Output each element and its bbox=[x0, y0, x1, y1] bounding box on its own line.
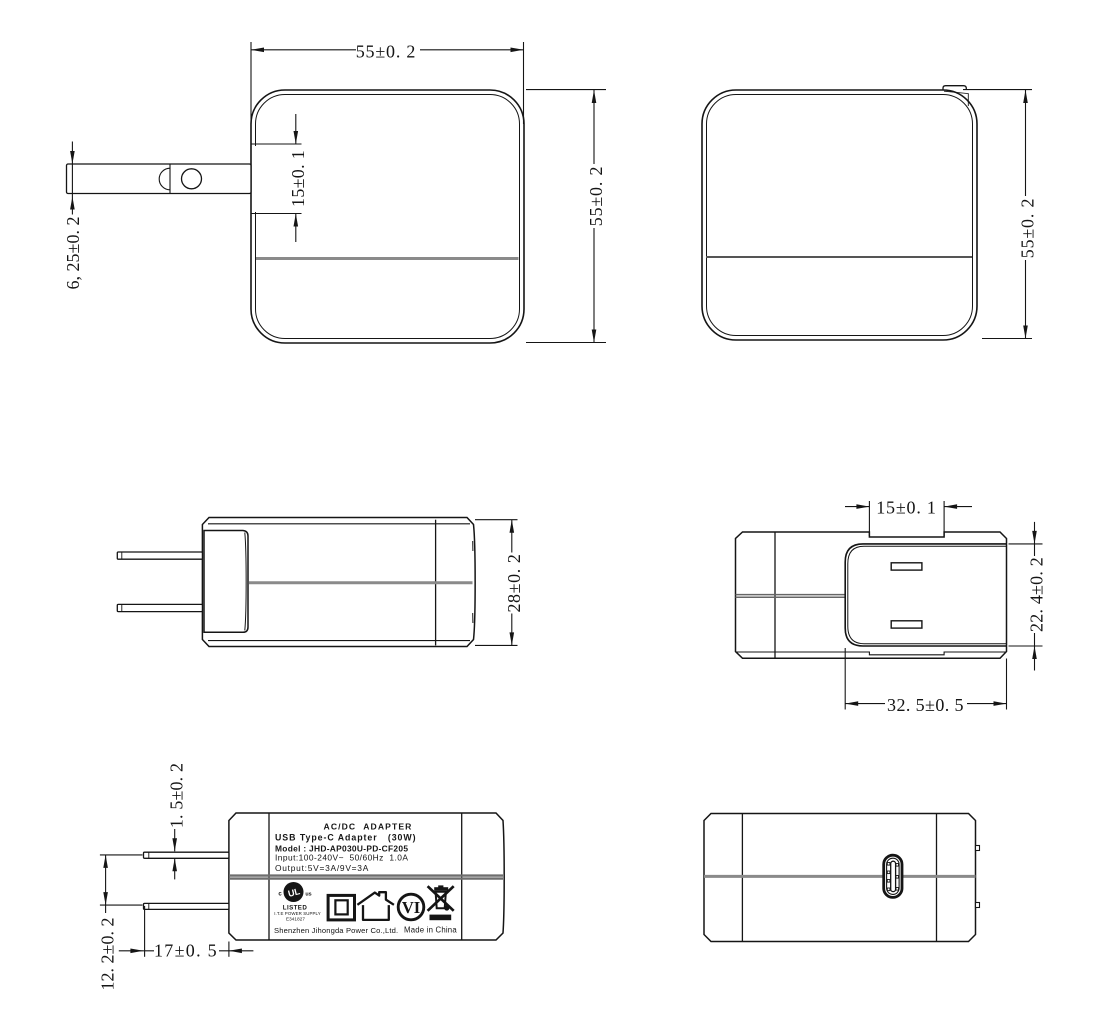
svg-text:55±0. 2: 55±0. 2 bbox=[356, 41, 416, 61]
svg-text:6, 25±0. 2: 6, 25±0. 2 bbox=[63, 217, 83, 290]
svg-text:USB Type-C Adapter (30W): USB Type-C Adapter (30W) bbox=[275, 833, 417, 843]
svg-text:Input:100-240V~ 50/60Hz 1.0A: Input:100-240V~ 50/60Hz 1.0A bbox=[275, 853, 408, 863]
svg-text:E341827: E341827 bbox=[286, 916, 305, 921]
svg-text:I.T.E POWER SUPPLY: I.T.E POWER SUPPLY bbox=[274, 911, 321, 916]
svg-text:AC/DC ADAPTER: AC/DC ADAPTER bbox=[324, 821, 413, 831]
svg-text:15±0. 1: 15±0. 1 bbox=[288, 150, 308, 207]
svg-text:15±0. 1: 15±0. 1 bbox=[876, 498, 936, 518]
svg-text:22. 4±0. 2: 22. 4±0. 2 bbox=[1027, 557, 1047, 632]
svg-text:VI: VI bbox=[402, 898, 420, 917]
svg-text:12. 2±0. 2: 12. 2±0. 2 bbox=[98, 918, 118, 991]
svg-text:28±0. 2: 28±0. 2 bbox=[504, 553, 524, 612]
svg-text:55±0. 2: 55±0. 2 bbox=[1018, 198, 1038, 258]
svg-text:32. 5±0. 5: 32. 5±0. 5 bbox=[887, 695, 964, 715]
svg-text:17±0. 5: 17±0. 5 bbox=[154, 941, 218, 961]
svg-text:Made in China: Made in China bbox=[404, 926, 457, 935]
svg-text:55±0. 2: 55±0. 2 bbox=[586, 166, 606, 226]
svg-text:1. 5±0. 2: 1. 5±0. 2 bbox=[167, 763, 187, 828]
svg-text:Shenzhen Jihongda Power Co.,Lt: Shenzhen Jihongda Power Co.,Ltd. bbox=[274, 926, 398, 935]
svg-text:Output:5V=3A/9V=3A: Output:5V=3A/9V=3A bbox=[275, 863, 369, 873]
svg-text:us: us bbox=[305, 891, 311, 897]
